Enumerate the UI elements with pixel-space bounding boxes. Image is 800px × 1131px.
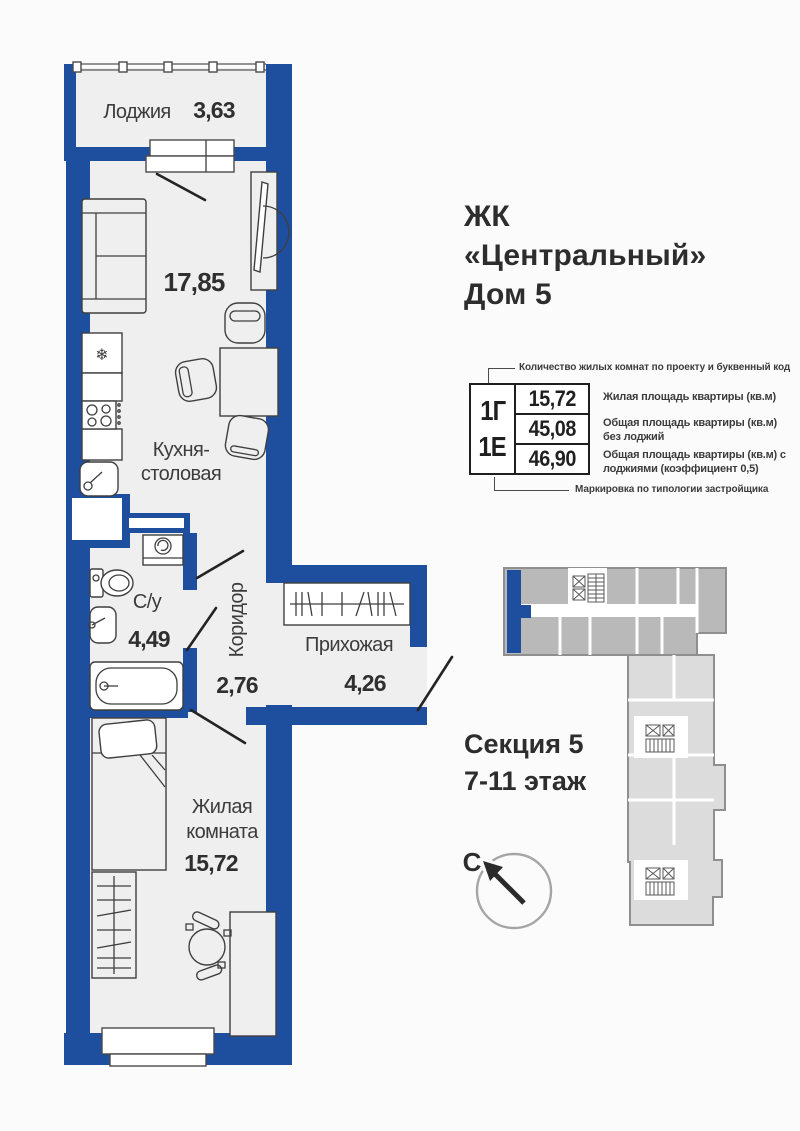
- hanger-rack: [284, 583, 410, 625]
- loggia-label: Лоджия: [103, 101, 170, 123]
- page-title: ЖК «Центральный» Дом 5: [464, 197, 706, 314]
- desk: [230, 912, 276, 1036]
- legend-desc-total-area-with-loggia: Общая площадь квартиры (кв.м) с лоджиями…: [603, 449, 789, 476]
- dining-chair: [224, 414, 271, 461]
- bathroom-label: С/у: [133, 591, 162, 613]
- loggia-area: 3,63: [193, 97, 235, 123]
- bathtub: [90, 662, 183, 710]
- washing-machine: [143, 535, 183, 565]
- compass: С: [463, 847, 551, 928]
- bathroom-sink: [89, 607, 116, 643]
- fridge: ❄: [82, 333, 122, 373]
- bathroom-area: 4,49: [128, 626, 170, 652]
- living-room-label-line1: Жилая: [192, 796, 252, 818]
- building-plan: С: [440, 550, 800, 950]
- legend-table: 1Г 1Е 15,72 45,08 46,90: [469, 383, 590, 475]
- total-area-value: 45,08: [528, 416, 575, 442]
- living-room-label-line2: комната: [186, 821, 259, 843]
- apartment-code-secondary: 1Е: [479, 429, 506, 465]
- elevator-stairs-icon: [646, 725, 674, 752]
- apartment-floorplan: ❄: [0, 0, 460, 1131]
- legend-top-note: Количество жилых комнат по проекту и бук…: [519, 362, 790, 373]
- legend-desc-living-area: Жилая площадь квартиры (кв.м): [603, 391, 789, 405]
- corridor-label: Коридор: [226, 582, 248, 657]
- kitchen-label-line1: Кухня-: [153, 439, 210, 461]
- pouf: [225, 303, 265, 343]
- kitchen-label-line2: столовая: [141, 463, 221, 485]
- kitchen-area: 17,85: [163, 267, 224, 297]
- compass-north-label: С: [463, 847, 482, 877]
- living-room-window: [102, 1028, 214, 1066]
- legend-value-row: 15,72: [516, 385, 588, 413]
- stove: [82, 401, 120, 429]
- fridge-snowflake-icon: ❄: [95, 345, 108, 364]
- floorplan-page: ❄: [0, 0, 800, 1131]
- balcony-window: [146, 140, 234, 172]
- apartment-code-primary: 1Г: [480, 393, 505, 429]
- bed: [92, 718, 166, 870]
- legend-bottom-note: Маркировка по типологии застройщика: [575, 484, 768, 495]
- legend-values-cell: 15,72 45,08 46,90: [516, 385, 588, 473]
- wardrobe: [92, 872, 136, 978]
- sofa: [82, 199, 146, 313]
- legend-codes-cell: 1Г 1Е: [471, 385, 516, 473]
- legend-top-connector: [488, 368, 515, 384]
- title-line3: Дом 5: [464, 275, 706, 314]
- kitchen-sink: [80, 462, 118, 496]
- legend-bottom-connector: [494, 477, 569, 491]
- hallway-label: Прихожая: [305, 634, 393, 656]
- title-line2: «Центральный»: [464, 236, 706, 275]
- loggia-glazing: [73, 62, 266, 72]
- legend-value-row: 46,90: [516, 443, 588, 473]
- toilet: [90, 569, 133, 597]
- elevator-stairs-icon: [646, 868, 674, 895]
- corridor-area: 2,76: [216, 672, 258, 698]
- dining-table: [220, 348, 278, 416]
- dining-chair: [174, 357, 218, 403]
- total-area-with-loggia-value: 46,90: [528, 446, 575, 472]
- hallway-area: 4,26: [344, 670, 386, 696]
- north-arrow-icon: [483, 861, 524, 903]
- legend-desc-total-area: Общая площадь квартиры (кв.м) без лоджий: [603, 417, 789, 444]
- title-line1: ЖК: [464, 197, 706, 236]
- legend-value-row: 45,08: [516, 413, 588, 443]
- living-room-area: 15,72: [184, 850, 238, 876]
- living-area-value: 15,72: [528, 386, 575, 412]
